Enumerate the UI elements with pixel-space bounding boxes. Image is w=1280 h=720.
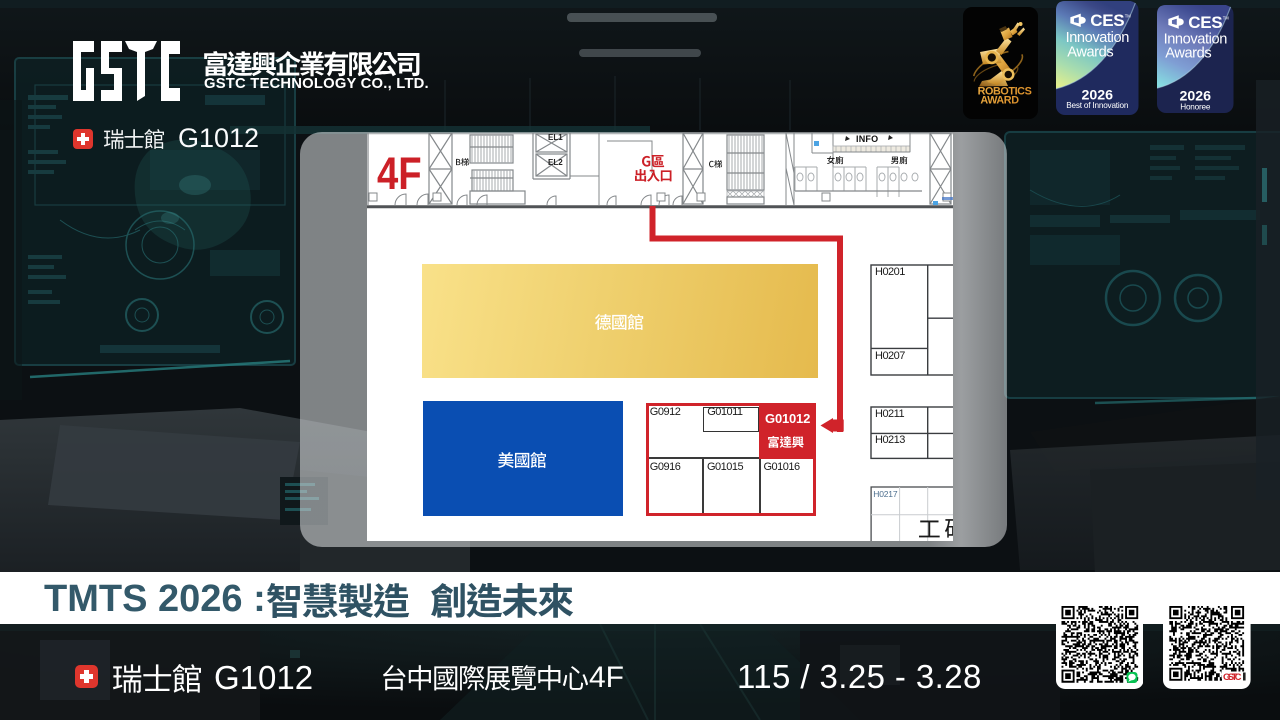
- svg-text:CES: CES: [1188, 13, 1222, 32]
- svg-text:AWARD: AWARD: [980, 95, 1019, 107]
- svg-text:Awards: Awards: [1067, 45, 1113, 61]
- svg-text:Honoree: Honoree: [1180, 102, 1211, 111]
- svg-text:Awards: Awards: [1165, 45, 1211, 61]
- svg-text:CES: CES: [1090, 11, 1124, 30]
- svg-text:TM: TM: [1125, 14, 1132, 19]
- svg-text:GSTC: GSTC: [1223, 672, 1242, 683]
- svg-text:Best of Innovation: Best of Innovation: [1066, 101, 1129, 110]
- svg-text:TM: TM: [1223, 15, 1230, 20]
